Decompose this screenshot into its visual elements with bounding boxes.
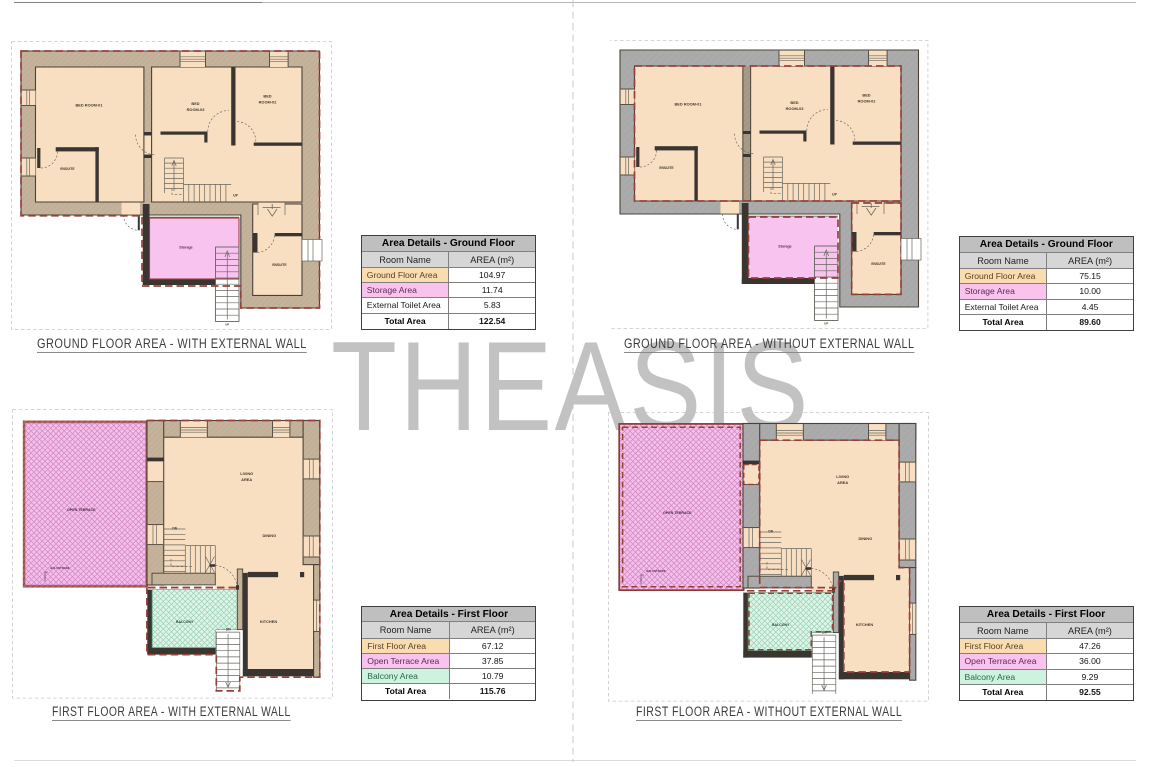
svg-text:BED: BED bbox=[791, 100, 799, 105]
svg-text:ROOM-02: ROOM-02 bbox=[259, 100, 278, 105]
svg-text:DN: DN bbox=[226, 628, 231, 632]
svg-text:ENSUITE: ENSUITE bbox=[660, 166, 675, 170]
svg-text:DN: DN bbox=[172, 527, 177, 531]
svg-text:AREA: AREA bbox=[241, 477, 252, 482]
svg-text:AREA: AREA bbox=[837, 480, 848, 485]
svg-text:KITCHEN: KITCHEN bbox=[260, 619, 277, 624]
svg-text:UP: UP bbox=[225, 323, 229, 327]
svg-text:LIVING: LIVING bbox=[240, 471, 253, 476]
svg-text:BALUSTRADE: BALUSTRADE bbox=[646, 569, 665, 573]
svg-text:Storage: Storage bbox=[779, 245, 792, 249]
svg-text:ENSUITE: ENSUITE bbox=[872, 262, 887, 266]
svg-text:OPEN TERRACE: OPEN TERRACE bbox=[663, 511, 692, 515]
svg-text:Storage: Storage bbox=[179, 246, 192, 250]
svg-text:BALCONY: BALCONY bbox=[772, 623, 790, 627]
svg-text:ENSUITE: ENSUITE bbox=[60, 167, 75, 171]
svg-text:BALUSTRADE: BALUSTRADE bbox=[50, 566, 69, 570]
svg-text:BED: BED bbox=[191, 101, 199, 106]
svg-text:BED: BED bbox=[863, 93, 871, 98]
svg-text:DINING: DINING bbox=[262, 533, 276, 538]
svg-text:OPEN TERRACE: OPEN TERRACE bbox=[67, 508, 96, 512]
svg-text:BED ROOM-01: BED ROOM-01 bbox=[675, 102, 703, 107]
svg-text:UP: UP bbox=[833, 193, 838, 197]
svg-text:DN: DN bbox=[768, 529, 773, 533]
svg-text:BALCONY: BALCONY bbox=[176, 620, 194, 624]
svg-text:LIVING: LIVING bbox=[836, 474, 849, 479]
svg-text:DN: DN bbox=[822, 630, 827, 634]
svg-text:ROOM-02: ROOM-02 bbox=[858, 99, 877, 104]
svg-text:KITCHEN: KITCHEN bbox=[855, 622, 872, 627]
svg-text:DINING: DINING bbox=[858, 536, 872, 541]
svg-text:UP: UP bbox=[825, 322, 829, 326]
svg-text:BED: BED bbox=[263, 94, 271, 99]
svg-text:ROOM-03: ROOM-03 bbox=[187, 107, 206, 112]
svg-text:UP: UP bbox=[233, 194, 238, 198]
svg-text:ROOM-03: ROOM-03 bbox=[786, 106, 805, 111]
svg-text:BED ROOM-01: BED ROOM-01 bbox=[75, 103, 103, 108]
svg-text:ENSUITE: ENSUITE bbox=[272, 263, 287, 267]
